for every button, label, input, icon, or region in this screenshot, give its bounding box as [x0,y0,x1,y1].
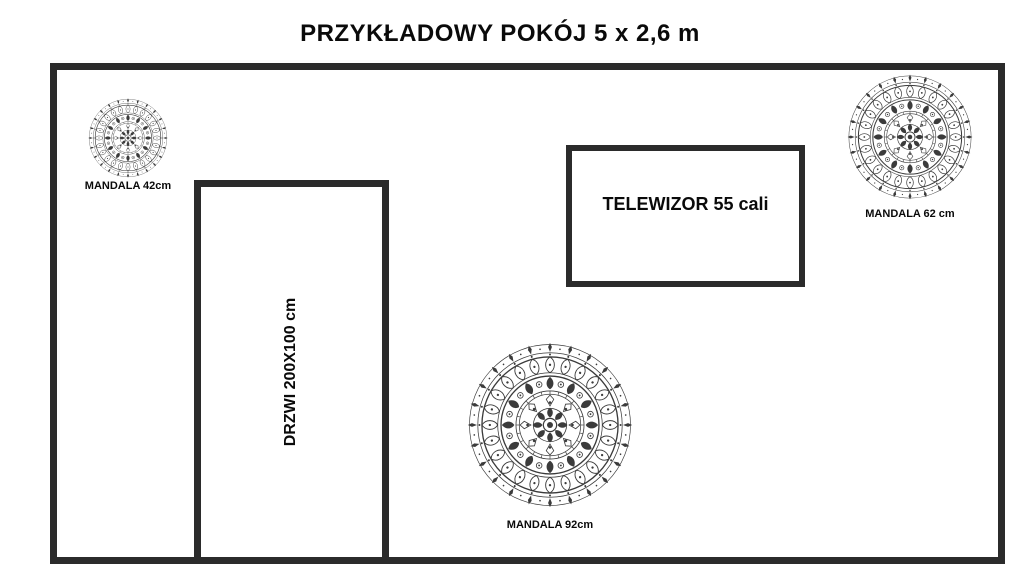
page-title: PRZYKŁADOWY POKÓJ 5 x 2,6 m [0,20,1000,48]
tv-rect: TELEWIZOR 55 cali [566,145,805,287]
mandala-92-label: MANDALA 92cm [507,519,593,531]
tv-label: TELEWIZOR 55 cali [602,194,768,215]
mandala-42: MANDALA 42cm [28,98,228,192]
mandala-92: MANDALA 92cm [450,342,650,531]
mandala-62-icon [847,74,973,200]
mandala-42-icon [88,98,168,178]
mandala-92-icon [467,342,633,508]
mandala-62: MANDALA 62 cm [810,74,1010,220]
mandala-42-label: MANDALA 42cm [85,180,171,192]
door-label: DRZWI 200X100 cm [282,298,300,447]
mandala-62-label: MANDALA 62 cm [865,208,954,220]
floor-plan-canvas: PRZYKŁADOWY POKÓJ 5 x 2,6 m DRZWI 200X10… [0,0,1024,585]
